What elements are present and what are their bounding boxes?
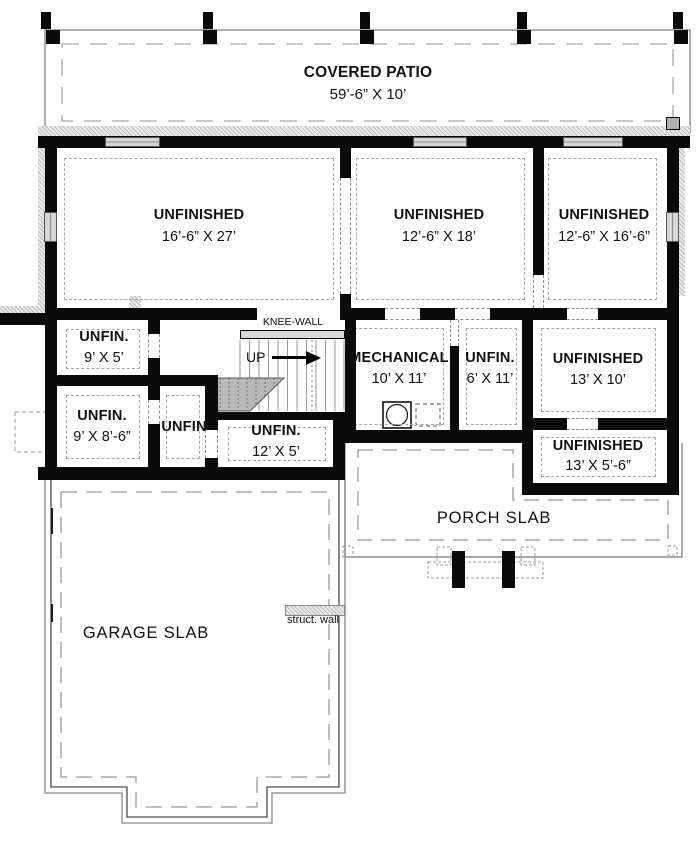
wall-9x5-right-b: [148, 358, 160, 375]
plan-shape: COVERED PATIO: [304, 62, 433, 84]
label-unfin-9x86: UNFIN. 9’ X 8’-6”: [73, 406, 130, 448]
label-unfinished-13x56: UNFINISHED 13’ X 5’-6”: [553, 436, 644, 476]
patio-column-2: [203, 30, 217, 44]
roof-post-2: [203, 12, 213, 29]
plan-shape: 6’ X 11’: [465, 369, 515, 390]
wall-9x5-right-a: [148, 320, 160, 334]
wall-13x56-bottom: [522, 483, 678, 495]
wall-12x5-right: [333, 412, 345, 480]
label-unfin-12x5: UNFIN. 12’ X 5’: [251, 421, 301, 463]
window-top-2: [413, 137, 467, 147]
patio-column-1: [46, 30, 60, 44]
patio-column-3: [360, 30, 374, 44]
porch-post-right: [502, 551, 515, 588]
top-wall-hatch: [38, 126, 690, 136]
label-unfinished-c: UNFINISHED 12’-6” X 16’-6”: [558, 204, 650, 248]
window-left: [44, 212, 57, 242]
plan-shape: UNFIN.: [465, 348, 515, 369]
window-top-1: [105, 137, 160, 147]
door-opening-mech-6x11: [450, 320, 459, 346]
corner-footing-right: [668, 546, 677, 555]
plan-shape: 16’-6” X 27’: [154, 226, 245, 248]
wall-mid-seg5: [533, 308, 567, 320]
plan-shape: UNFINISHED: [154, 204, 245, 226]
door-opening-9x86: [148, 400, 160, 424]
struct-wall-label: struct. wall: [287, 614, 339, 626]
label-mechanical: MECHANICAL 10’ X 11’: [349, 348, 448, 390]
patio-column-5: [674, 30, 688, 44]
wall-mid-seg3: [420, 308, 455, 320]
window-top-3: [563, 137, 623, 147]
label-unfinished-13x10: UNFINISHED 13’ X 10’: [553, 349, 644, 391]
wall-bc-open-dashed: [533, 275, 544, 308]
plan-shape: 13’ X 5’-6”: [553, 456, 644, 476]
roof-post-4: [517, 12, 527, 29]
up-arrow-icon: [306, 351, 321, 365]
door-opening-small: [205, 430, 218, 458]
plan-shape: UNFIN.: [251, 421, 301, 442]
wall-9x86-right-b: [148, 424, 160, 467]
plan-shape: 9’ X 8’-6”: [73, 427, 130, 448]
plan-shape: UNFIN.: [73, 406, 130, 427]
floor-plan: UP COVERED PATIO 59’-6” X 10’ UNFINISHED…: [0, 0, 699, 850]
plan-shape: UNFIN.: [79, 327, 129, 348]
label-unfinished-a: UNFINISHED 16’-6” X 27’: [154, 204, 245, 248]
wall-bc: [533, 148, 544, 275]
plan-shape: 59’-6” X 10’: [304, 84, 433, 106]
knee-wall-bar: [240, 330, 345, 339]
patio-column-4: [517, 30, 531, 44]
wall-small-right-b: [205, 458, 218, 467]
plan-shape: 9’ X 5’: [79, 348, 129, 369]
wall-ab-open-dashed: [340, 178, 351, 294]
roof-post-3: [360, 12, 370, 29]
door-opening-6x11: [455, 308, 490, 320]
plan-shape: UNFINISHED: [553, 349, 644, 370]
label-unfin-6x11: UNFIN. 6’ X 11’: [465, 348, 515, 390]
plan-shape: 12’ X 5’: [251, 442, 301, 463]
wall-right-block-left: [522, 308, 533, 495]
wall-ab-top-stub: [340, 148, 351, 178]
post-beam-dashed: [428, 562, 543, 578]
roof-post-5: [673, 12, 683, 29]
door-opening-13x10-top: [567, 308, 598, 320]
wall-mech-bottom: [345, 430, 522, 443]
up-label: UP: [246, 349, 265, 365]
up-arrow-shaft: [272, 356, 306, 359]
door-opening-13x56: [567, 418, 598, 430]
wall-small-right-a: [205, 375, 218, 430]
wall-13x10-bottom-a: [533, 418, 567, 430]
plan-shape: UNFIN: [161, 416, 206, 438]
wall-mid-seg6: [598, 308, 678, 320]
plan-shape: 12’-6” X 18’: [394, 226, 485, 248]
label-garage-slab: GARAGE SLAB: [83, 622, 209, 644]
wall-leftwing-mid: [45, 375, 218, 386]
garage-outline-inner: [51, 480, 339, 817]
wall-left-stub: [0, 313, 45, 325]
plan-shape: 10’ X 11’: [349, 369, 448, 390]
label-porch-slab: PORCH SLAB: [437, 507, 551, 529]
stair-understair-shade: [213, 378, 284, 411]
wall-13x10-bottom-b: [598, 418, 678, 430]
door-opening-mechanical: [385, 308, 420, 320]
wall-garage-top: [38, 467, 345, 480]
plan-shape: UNFINISHED: [394, 204, 485, 226]
left-stub-hatch: [0, 306, 45, 313]
plan-shape: UNFINISHED: [558, 204, 650, 226]
garage-outline-outer: [45, 480, 345, 823]
roof-post-1: [41, 12, 51, 29]
garage-dashed-edge: [61, 492, 329, 807]
door-opening-9x5: [148, 334, 160, 358]
knee-wall-label: KNEE-WALL: [263, 316, 323, 328]
plan-shape: 12’-6” X 16’-6”: [558, 226, 650, 248]
wall-understair: [205, 412, 345, 420]
left-footing-dashed: [15, 412, 47, 452]
label-covered-patio: COVERED PATIO 59’-6” X 10’: [304, 62, 433, 106]
label-unfinished-b: UNFINISHED 12’-6” X 18’: [394, 204, 485, 248]
label-unfin-small: UNFIN: [161, 416, 206, 438]
wall-mech-6x11: [450, 346, 459, 430]
plan-shape: 13’ X 10’: [553, 370, 644, 391]
porch-post-left: [452, 551, 465, 588]
right-wall-hatch: [679, 136, 685, 296]
window-right: [666, 212, 679, 242]
patio-corner-pier: [666, 117, 680, 130]
wall-mid-seg1: [45, 308, 257, 320]
wall-9x86-right-a: [148, 386, 160, 400]
plan-shape: MECHANICAL: [349, 348, 448, 369]
plan-shape: UNFINISHED: [553, 436, 644, 456]
label-unfin-9x5: UNFIN. 9’ X 5’: [79, 327, 129, 369]
